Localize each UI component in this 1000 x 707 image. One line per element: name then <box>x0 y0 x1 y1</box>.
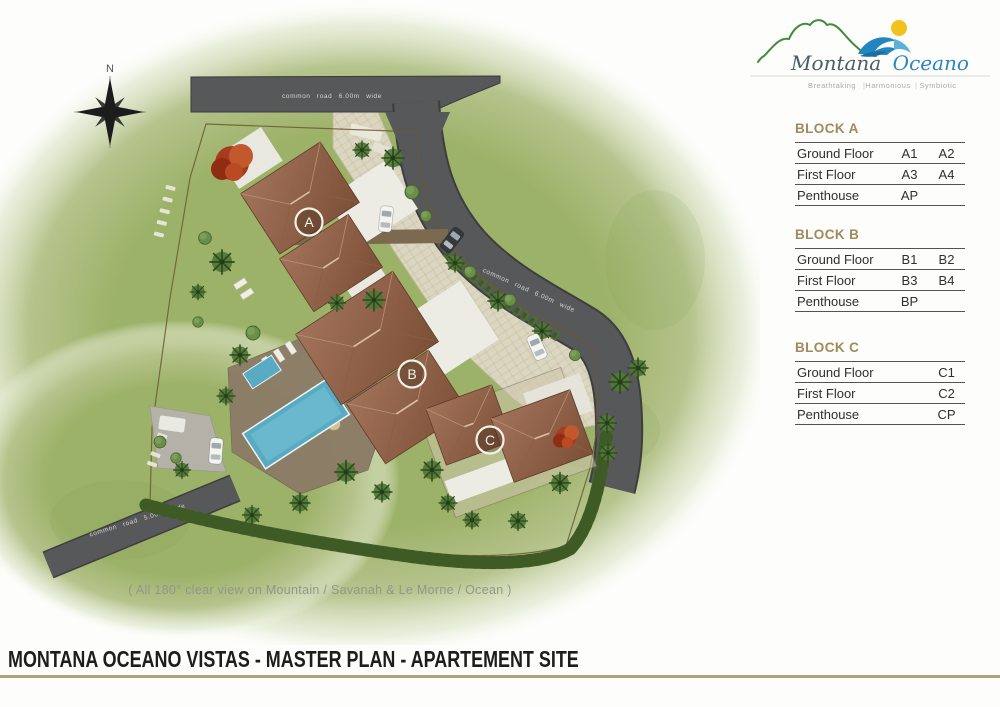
table-row: Penthouse BP <box>795 291 965 312</box>
floor-label: First Floor <box>795 167 891 182</box>
title-rule <box>0 675 1000 678</box>
logo-name: Montana Oceano <box>790 51 969 75</box>
floor-label: Ground Floor <box>795 365 891 380</box>
building-marker-b: B <box>399 361 426 388</box>
logo-sun-icon <box>891 20 907 36</box>
svg-text:Symbiotic: Symbiotic <box>919 81 956 90</box>
floor-label: First Floor <box>795 386 891 401</box>
block-b-table: BLOCK B Ground Floor B1 B2 First Floor B… <box>795 227 965 312</box>
building-marker-a: A <box>296 209 323 236</box>
floor-label: Penthouse <box>795 294 891 309</box>
unit-cell: AP <box>891 188 928 203</box>
floor-label: Ground Floor <box>795 146 891 161</box>
floor-label: Penthouse <box>795 188 891 203</box>
unit-cell: A2 <box>928 146 965 161</box>
logo-tagline: Breathtaking | Harmonious | Symbiotic <box>808 81 957 90</box>
unit-cell: B2 <box>928 252 965 267</box>
page-title: MONTANA OCEANO VISTAS - MASTER PLAN - AP… <box>8 646 579 673</box>
car-white-parking-sw <box>209 438 224 465</box>
svg-text:|: | <box>915 81 917 90</box>
site-plan: common road 6.00m wide common road 6.00m… <box>0 0 760 645</box>
svg-text:Harmonious: Harmonious <box>865 81 910 90</box>
road-label-north: common road 6.00m wide <box>282 93 382 100</box>
unit-cell: B1 <box>891 252 928 267</box>
car-white-driveway <box>378 205 394 232</box>
block-b-title: BLOCK B <box>795 227 965 242</box>
unit-cell: A1 <box>891 146 928 161</box>
table-row: Ground Floor C1 <box>795 362 965 383</box>
plan-caption: ( All 180° clear view on Mountain / Sava… <box>60 583 580 597</box>
block-c-table: BLOCK C Ground Floor C1 First Floor C2 P… <box>795 340 965 425</box>
unit-cell: A3 <box>891 167 928 182</box>
unit-cell: CP <box>928 407 965 422</box>
table-row: First Floor B3 B4 <box>795 270 965 291</box>
compass-north-label: N <box>106 63 114 75</box>
unit-cell: B3 <box>891 273 928 288</box>
unit-cell: B4 <box>928 273 965 288</box>
floor-label: First Floor <box>795 273 891 288</box>
table-row: First Floor C2 <box>795 383 965 404</box>
block-a-title: BLOCK A <box>795 121 965 136</box>
unit-cell: C2 <box>928 386 965 401</box>
unit-cell: C1 <box>928 365 965 380</box>
building-marker-c: C <box>477 427 504 454</box>
table-row: Penthouse AP <box>795 185 965 206</box>
unit-cell: BP <box>891 294 928 309</box>
unit-cell: A4 <box>928 167 965 182</box>
floor-label: Ground Floor <box>795 252 891 267</box>
building-marker-a-label: A <box>304 214 314 230</box>
svg-text:Breathtaking: Breathtaking <box>808 81 856 90</box>
logo: Montana Oceano Breathtaking | Harmonious… <box>748 12 992 104</box>
block-c-title: BLOCK C <box>795 340 965 355</box>
table-row: Ground Floor B1 B2 <box>795 249 965 270</box>
building-marker-b-label: B <box>407 366 416 382</box>
block-a-table: BLOCK A Ground Floor A1 A2 First Floor A… <box>795 121 965 206</box>
table-row: First Floor A3 A4 <box>795 164 965 185</box>
floor-label: Penthouse <box>795 407 891 422</box>
building-marker-c-label: C <box>485 432 495 448</box>
table-row: Penthouse CP <box>795 404 965 425</box>
table-row: Ground Floor A1 A2 <box>795 143 965 164</box>
